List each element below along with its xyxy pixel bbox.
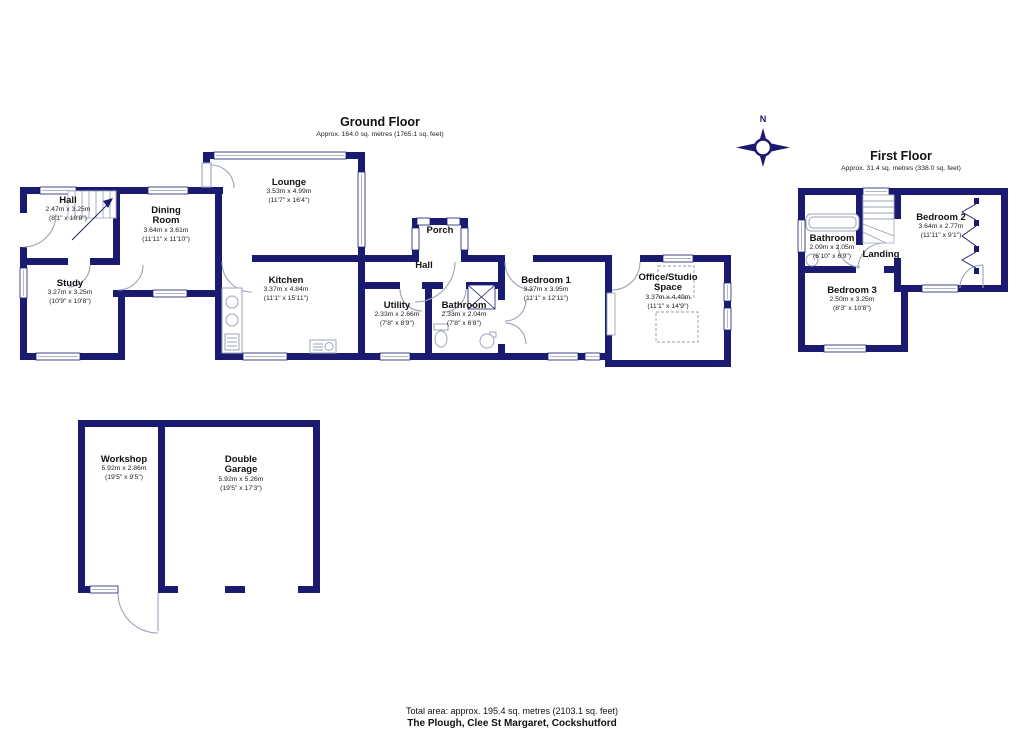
ground-floor-title: Ground Floor Approx. 164.0 sq. metres (1… — [280, 116, 480, 140]
floorplan-canvas: Ground Floor Approx. 164.0 sq. metres (1… — [0, 0, 1024, 745]
room-label-kitchen: Kitchen 3.37m x 4.84m (11'1" x 15'11") — [236, 276, 336, 304]
room-label-bedroom-1: Bedroom 1 3.37m x 3.95m (11'1" x 12'11") — [496, 276, 596, 304]
outbuilding-walls — [78, 420, 320, 593]
total-area-text: Total area: approx. 195.4 sq. metres (21… — [0, 706, 1024, 716]
room-label-bedroom-3: Bedroom 3 2.50m x 3.25m (8'3" x 10'8") — [802, 286, 902, 314]
room-label-bathroom-gf: Bathroom 2.33m x 2.04m (7'8" x 6'8") — [422, 301, 506, 329]
first-floor-title: First Floor Approx. 31.4 sq. metres (338… — [801, 150, 1001, 174]
room-label-study: Study 3.27m x 3.25m (10'9" x 10'8") — [25, 279, 115, 307]
room-label-hall-gf: Hall 2.47m x 3.25m (8'1" x 10'8") — [28, 196, 108, 224]
first-floor-title-text: First Floor — [801, 150, 1001, 164]
floorplan-drawing — [0, 0, 1024, 745]
sink-icon — [480, 332, 496, 348]
first-floor-subtitle-text: Approx. 31.4 sq. metres (338.0 sq. feet) — [801, 164, 1001, 174]
bath-tub-icon — [806, 214, 859, 231]
room-label-landing: Landing — [846, 250, 916, 260]
room-label-hall-mid: Hall — [399, 261, 449, 271]
compass-icon — [736, 128, 790, 167]
room-label-lounge: Lounge 3.53m x 4.99m (11'7" x 16'4") — [239, 178, 339, 206]
property-address-text: The Plough, Clee St Margaret, Cockshutfo… — [0, 718, 1024, 729]
compass-north-label: N — [749, 114, 777, 124]
office-radiator-icon — [607, 293, 615, 335]
outbuilding-window — [90, 586, 118, 593]
room-label-office-studio: Office/Studio Space 3.37m x 4.49m (11'1"… — [618, 273, 718, 312]
room-label-double-garage: Double Garage 5.92m x 5.26m (19'5" x 17'… — [201, 455, 281, 494]
room-label-dining-room: Dining Room 3.64m x 3.61m (11'11" x 11'1… — [131, 206, 201, 245]
ground-floor-walls — [20, 152, 731, 367]
room-label-workshop: Workshop 5.92m x 2.86m (19'5" x 9'5") — [79, 455, 169, 483]
ground-floor-subtitle-text: Approx. 164.0 sq. metres (1765.1 sq. fee… — [280, 130, 480, 140]
room-label-bedroom-2: Bedroom 2 3.64m x 2.77m (11'11" x 9'1") — [891, 213, 991, 241]
outbuilding-door — [118, 593, 158, 633]
room-label-porch: Porch — [410, 226, 470, 236]
ground-floor-title-text: Ground Floor — [280, 116, 480, 130]
washing-machine-icon — [310, 340, 336, 353]
